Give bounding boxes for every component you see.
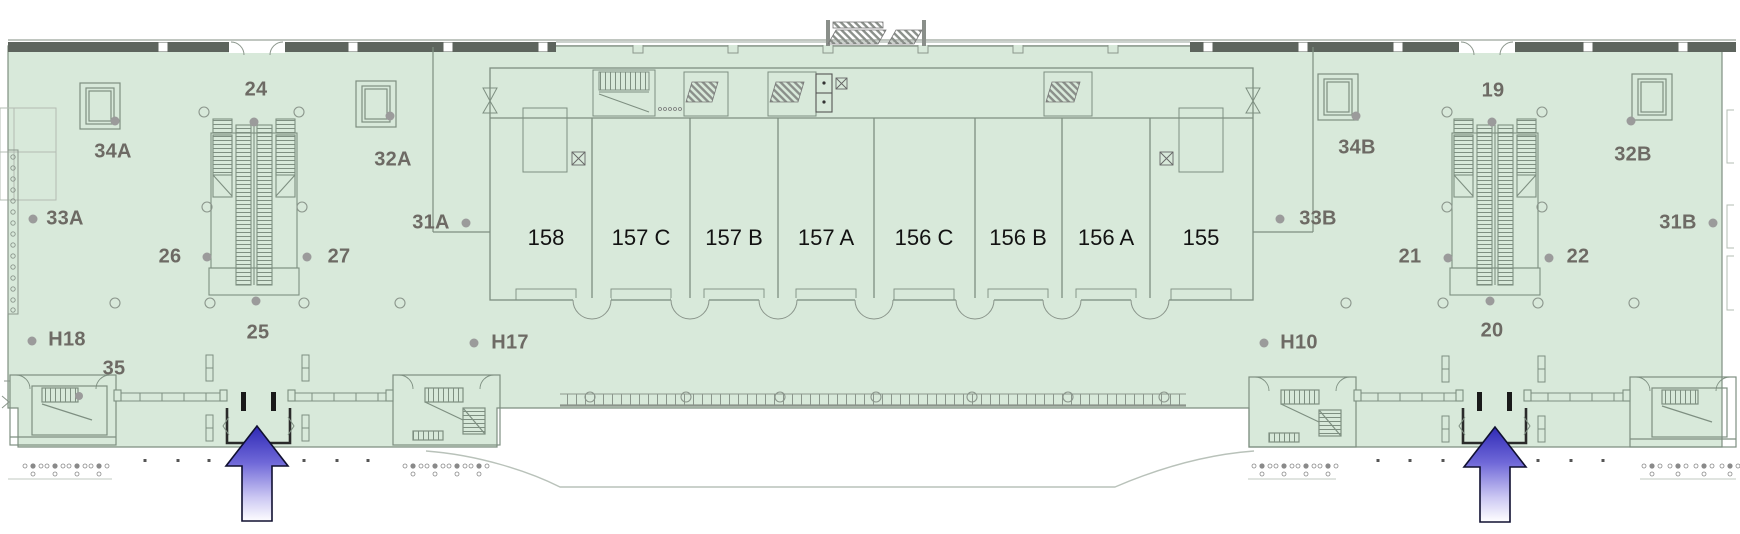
room-label-156b: 156 B	[989, 225, 1047, 251]
exterior-ramp-hatch	[826, 20, 926, 46]
room-label-155: 155	[1183, 225, 1220, 251]
zone-label-22: 22	[1567, 246, 1590, 269]
zone-label-34a: 34A	[94, 141, 132, 164]
room-label-157c: 157 C	[612, 225, 671, 251]
zone-label-21: 21	[1399, 246, 1422, 269]
zone-label-h18: H18	[48, 329, 86, 352]
room-label-157b: 157 B	[705, 225, 763, 251]
zone-label-33a: 33A	[46, 208, 84, 231]
zone-label-32b: 32B	[1614, 144, 1652, 167]
zone-label-24: 24	[245, 79, 268, 102]
zone-label-31b: 31B	[1659, 212, 1697, 235]
floor-plan-canvas: 158 157 C 157 B 157 A 156 C 156 B 156 A …	[0, 0, 1740, 534]
zone-label-27: 27	[328, 246, 351, 269]
east-facade-brackets	[1727, 110, 1734, 310]
zone-label-25: 25	[247, 322, 270, 345]
north-entrance-doors-right	[1459, 41, 1515, 55]
zone-label-19: 19	[1482, 80, 1505, 103]
zone-label-32a: 32A	[374, 149, 412, 172]
zone-label-h10: H10	[1280, 332, 1318, 355]
zone-label-26: 26	[159, 246, 182, 269]
south-window-wall	[560, 394, 1186, 406]
room-label-156a: 156 A	[1078, 225, 1134, 251]
room-label-157a: 157 A	[798, 225, 854, 251]
zone-label-h17: H17	[491, 332, 529, 355]
room-label-158: 158	[528, 225, 565, 251]
zone-label-35: 35	[103, 358, 126, 381]
zone-label-34b: 34B	[1338, 137, 1376, 160]
zone-label-33b: 33B	[1299, 208, 1337, 231]
north-entrance-doors-left	[229, 41, 285, 55]
room-label-156c: 156 C	[895, 225, 954, 251]
zone-label-20: 20	[1481, 320, 1504, 343]
zone-label-31a: 31A	[412, 212, 450, 235]
